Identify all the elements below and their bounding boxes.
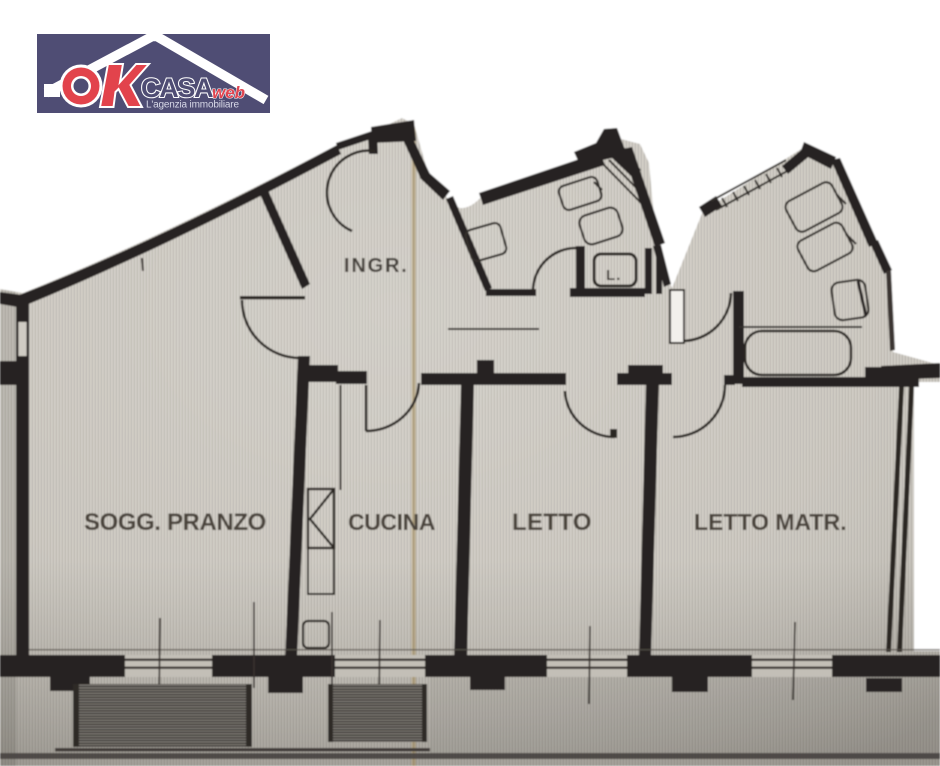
svg-text:SOGG. PRANZO: SOGG. PRANZO: [84, 509, 266, 536]
svg-text:CUCINA: CUCINA: [348, 509, 435, 535]
svg-text:L.: L.: [606, 267, 621, 284]
svg-text:INGR.: INGR.: [344, 255, 409, 277]
svg-text:LETTO: LETTO: [512, 509, 592, 536]
svg-text:LETTO MATR.: LETTO MATR.: [694, 509, 846, 535]
svg-text:L'agenzia immobiliare: L'agenzia immobiliare: [146, 100, 239, 111]
svg-text:CASA: CASA: [141, 73, 213, 103]
